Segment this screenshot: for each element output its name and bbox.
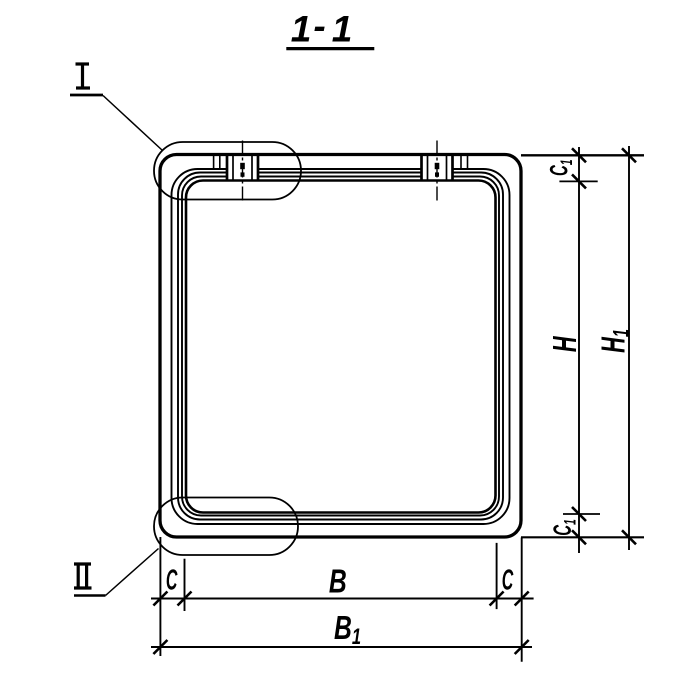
svg-text:B: B: [329, 564, 347, 600]
svg-text:1: 1: [291, 9, 312, 50]
svg-text:1: 1: [332, 9, 353, 50]
svg-text:C: C: [502, 564, 514, 596]
svg-text:C: C: [166, 564, 178, 596]
svg-text:H: H: [546, 336, 583, 352]
svg-text:C1: C1: [546, 159, 576, 176]
svg-text:-: -: [313, 6, 325, 47]
svg-text:H1: H1: [595, 329, 633, 353]
svg-text:B1: B1: [334, 611, 361, 650]
svg-text:C1: C1: [549, 519, 579, 536]
